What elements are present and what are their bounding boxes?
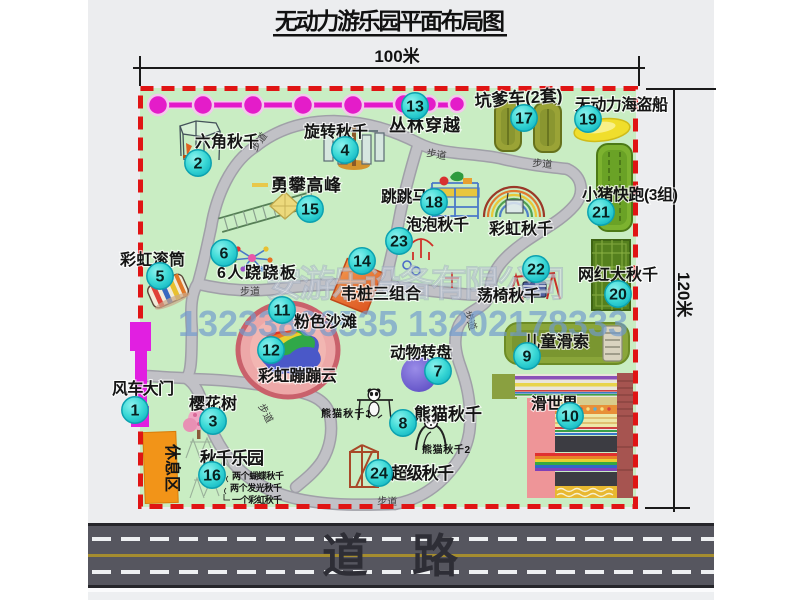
svg-text:熊猫秋千: 熊猫秋千 xyxy=(414,404,482,424)
svg-text:6: 6 xyxy=(220,246,229,263)
svg-text:11: 11 xyxy=(274,303,291,320)
svg-text:13: 13 xyxy=(406,99,424,116)
svg-text:8: 8 xyxy=(399,416,408,433)
svg-text:12: 12 xyxy=(262,343,280,360)
svg-text:熊猫秋千1: 熊猫秋千1 xyxy=(321,407,371,420)
svg-text:23: 23 xyxy=(390,234,408,251)
svg-text:风车大门: 风车大门 xyxy=(112,379,174,398)
svg-text:3: 3 xyxy=(209,414,218,431)
svg-text:道: 道 xyxy=(322,530,368,582)
svg-text:路: 路 xyxy=(412,530,459,582)
svg-text:22: 22 xyxy=(527,262,545,279)
svg-text:1: 1 xyxy=(131,403,140,420)
svg-text:两个蝴蝶秋千: 两个蝴蝶秋千 xyxy=(232,470,284,481)
svg-text:4: 4 xyxy=(341,143,350,160)
svg-text:10: 10 xyxy=(561,409,579,426)
svg-text:17: 17 xyxy=(515,111,533,128)
svg-text:16: 16 xyxy=(203,468,221,485)
svg-text:韦桩三组合: 韦桩三组合 xyxy=(341,284,422,303)
svg-text:荡椅秋千: 荡椅秋千 xyxy=(477,286,540,305)
svg-text:彩虹秋千: 彩虹秋千 xyxy=(488,219,553,238)
svg-text:丛林穿越: 丛林穿越 xyxy=(389,115,461,135)
svg-text:六角秋千: 六角秋千 xyxy=(195,132,259,151)
svg-text:21: 21 xyxy=(592,205,610,222)
svg-text:24: 24 xyxy=(370,466,388,483)
svg-text:100米: 100米 xyxy=(374,46,420,66)
svg-text:2: 2 xyxy=(194,156,203,173)
svg-text:步道: 步道 xyxy=(240,285,260,298)
svg-text:泡泡秋千: 泡泡秋千 xyxy=(406,215,469,234)
svg-text:7: 7 xyxy=(434,364,443,381)
svg-text:彩虹蹦蹦云: 彩虹蹦蹦云 xyxy=(257,366,337,385)
svg-text:超级秋千: 超级秋千 xyxy=(391,463,454,483)
svg-text:熊猫秋千2: 熊猫秋千2 xyxy=(422,443,470,456)
svg-text:20: 20 xyxy=(609,287,627,304)
svg-text:休息区: 休息区 xyxy=(163,443,182,492)
svg-text:120米: 120米 xyxy=(674,272,694,318)
svg-text:旋转秋千: 旋转秋千 xyxy=(303,122,368,141)
svg-text:14: 14 xyxy=(353,254,371,271)
svg-text:一个彩虹秋千: 一个彩虹秋千 xyxy=(232,494,282,505)
svg-text:5: 5 xyxy=(156,269,165,286)
svg-text:两个发光秋千: 两个发光秋千 xyxy=(230,482,282,493)
svg-text:9: 9 xyxy=(523,349,532,366)
svg-text:15: 15 xyxy=(301,202,319,219)
svg-text:18: 18 xyxy=(425,195,443,212)
svg-text:无动力游乐园平面布局图: 无动力游乐园平面布局图 xyxy=(275,8,505,34)
svg-text:勇攀高峰: 勇攀高峰 xyxy=(271,175,342,195)
svg-text:粉色沙滩: 粉色沙滩 xyxy=(294,312,357,331)
svg-text:19: 19 xyxy=(579,112,597,129)
